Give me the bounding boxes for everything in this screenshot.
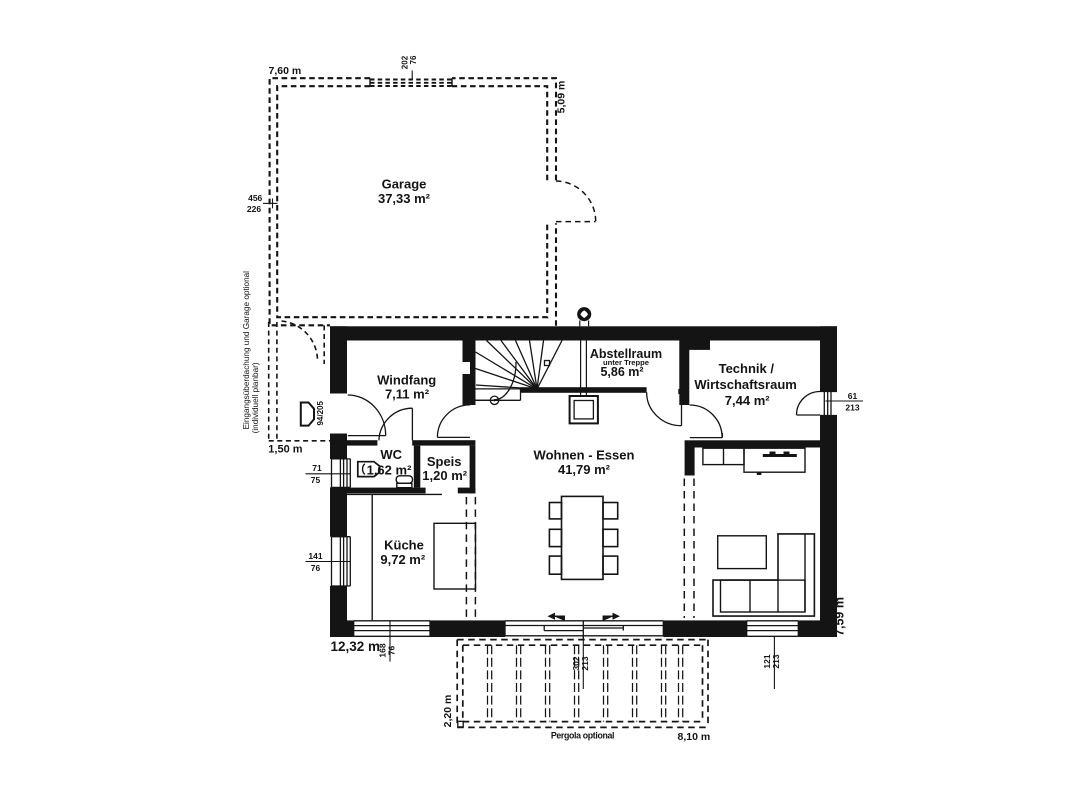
- svg-text:Speis: Speis: [427, 454, 462, 469]
- svg-text:5,09 m: 5,09 m: [556, 81, 568, 114]
- svg-text:WC: WC: [380, 447, 402, 462]
- svg-text:141: 141: [308, 551, 322, 561]
- svg-text:7,11 m²: 7,11 m²: [385, 387, 430, 402]
- svg-text:76: 76: [311, 563, 321, 573]
- svg-text:41,79 m²: 41,79 m²: [558, 462, 611, 477]
- svg-text:226: 226: [247, 204, 261, 214]
- svg-text:7,60 m: 7,60 m: [269, 65, 302, 77]
- svg-text:94/205: 94/205: [316, 401, 325, 426]
- svg-text:Technik /: Technik /: [719, 361, 775, 376]
- svg-text:5,86 m²: 5,86 m²: [600, 365, 643, 379]
- svg-text:213: 213: [845, 402, 859, 412]
- svg-text:Wohnen - Essen: Wohnen - Essen: [534, 448, 635, 463]
- svg-text:8,10 m: 8,10 m: [678, 731, 711, 743]
- svg-text:Garage: Garage: [382, 177, 427, 192]
- svg-text:213: 213: [771, 654, 781, 668]
- svg-text:9,72 m²: 9,72 m²: [380, 552, 425, 567]
- svg-text:76: 76: [409, 55, 418, 64]
- svg-text:Wirtschaftsraum: Wirtschaftsraum: [694, 377, 796, 392]
- svg-text:61: 61: [848, 391, 858, 401]
- svg-text:Küche: Küche: [384, 538, 424, 553]
- svg-text:7,44 m²: 7,44 m²: [725, 393, 770, 408]
- svg-text:456: 456: [248, 193, 262, 203]
- svg-text:Eingangsüberdachung und Garage: Eingangsüberdachung und Garage optional: [242, 271, 251, 430]
- svg-text:213: 213: [580, 656, 590, 670]
- svg-text:(individuell planbar): (individuell planbar): [251, 362, 260, 433]
- svg-text:71: 71: [312, 463, 322, 473]
- svg-text:2,20 m: 2,20 m: [442, 695, 454, 728]
- svg-text:Windfang: Windfang: [377, 372, 436, 387]
- svg-text:37,33 m²: 37,33 m²: [378, 191, 431, 206]
- svg-text:7,59 m: 7,59 m: [833, 597, 847, 636]
- svg-text:12,32 m: 12,32 m: [331, 639, 381, 654]
- svg-text:76: 76: [387, 646, 397, 656]
- svg-text:1,50 m: 1,50 m: [268, 444, 302, 456]
- svg-text:Pergola optional: Pergola optional: [551, 731, 614, 741]
- svg-text:75: 75: [311, 475, 321, 485]
- svg-text:1,20 m²: 1,20 m²: [422, 468, 467, 483]
